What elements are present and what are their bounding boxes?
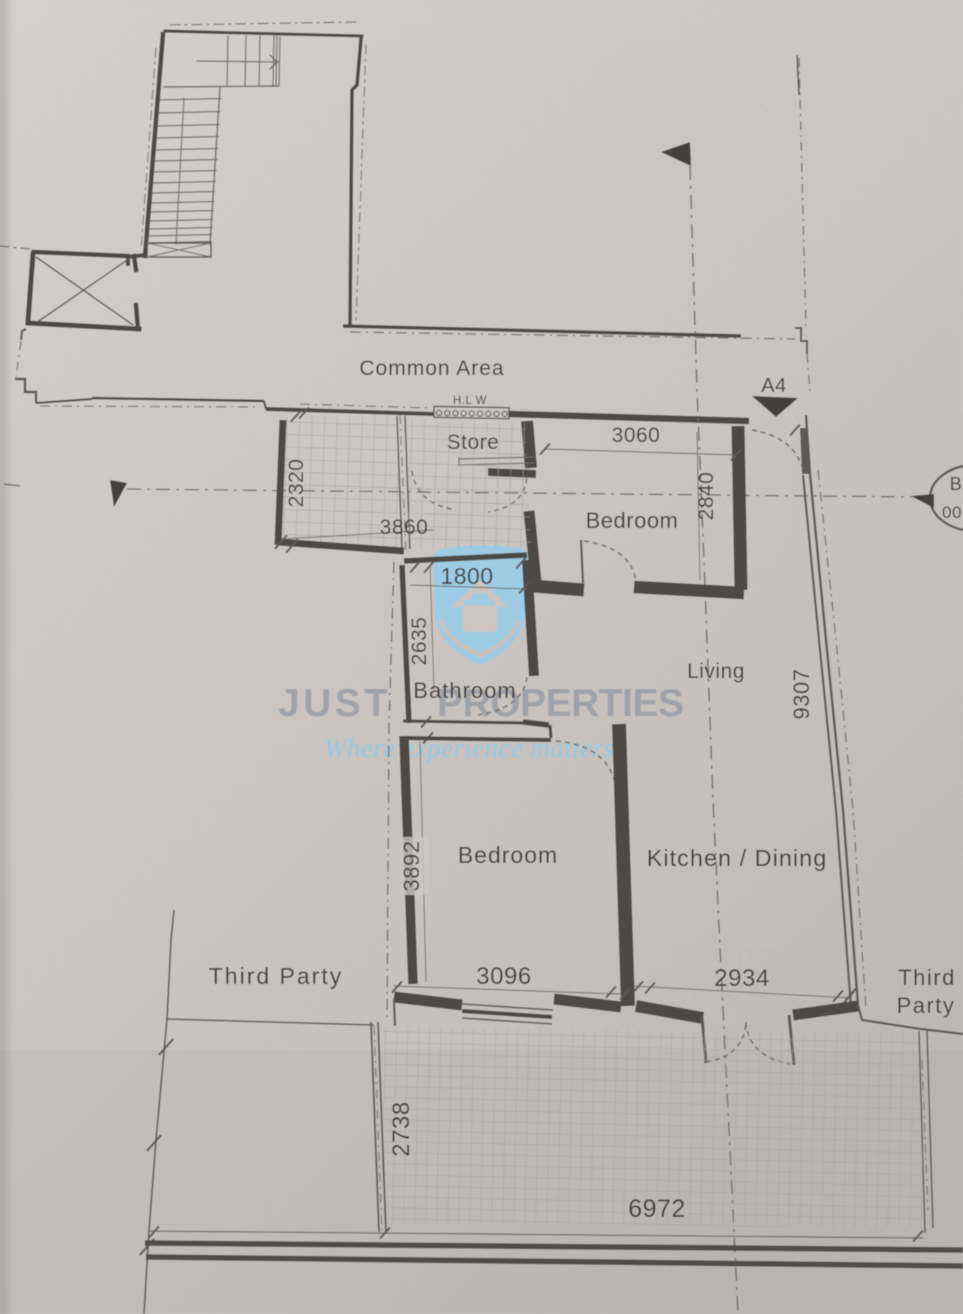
svg-text:2635: 2635	[408, 617, 431, 666]
svg-text:Bedroom: Bedroom	[458, 842, 558, 868]
svg-text:3060: 3060	[612, 424, 661, 447]
svg-text:Bedroom: Bedroom	[586, 508, 679, 533]
svg-text:Living: Living	[687, 660, 745, 683]
svg-text:JUST: JUST	[278, 682, 391, 725]
svg-text:Common Area: Common Area	[359, 357, 504, 380]
svg-text:Third Party: Third Party	[209, 963, 343, 989]
svg-text:Party: Party	[897, 993, 956, 1018]
svg-text:3892: 3892	[399, 841, 424, 892]
svg-text:9307: 9307	[789, 669, 814, 720]
svg-text:3096: 3096	[476, 963, 531, 990]
svg-text:6972: 6972	[628, 1195, 686, 1223]
svg-text:3860: 3860	[380, 516, 429, 539]
svg-text:H.L W: H.L W	[453, 395, 487, 407]
svg-text:Third: Third	[898, 965, 956, 990]
svg-text:A4: A4	[761, 375, 786, 397]
svg-text:2320: 2320	[285, 459, 308, 508]
svg-text:2738: 2738	[388, 1101, 415, 1156]
svg-text:B: B	[950, 474, 963, 494]
svg-text:Kitchen / Dining: Kitchen / Dining	[647, 845, 828, 871]
svg-text:1800: 1800	[440, 563, 493, 589]
svg-text:Bathroom: Bathroom	[413, 678, 516, 703]
svg-text:2840: 2840	[695, 472, 718, 521]
svg-text:00: 00	[942, 503, 962, 522]
